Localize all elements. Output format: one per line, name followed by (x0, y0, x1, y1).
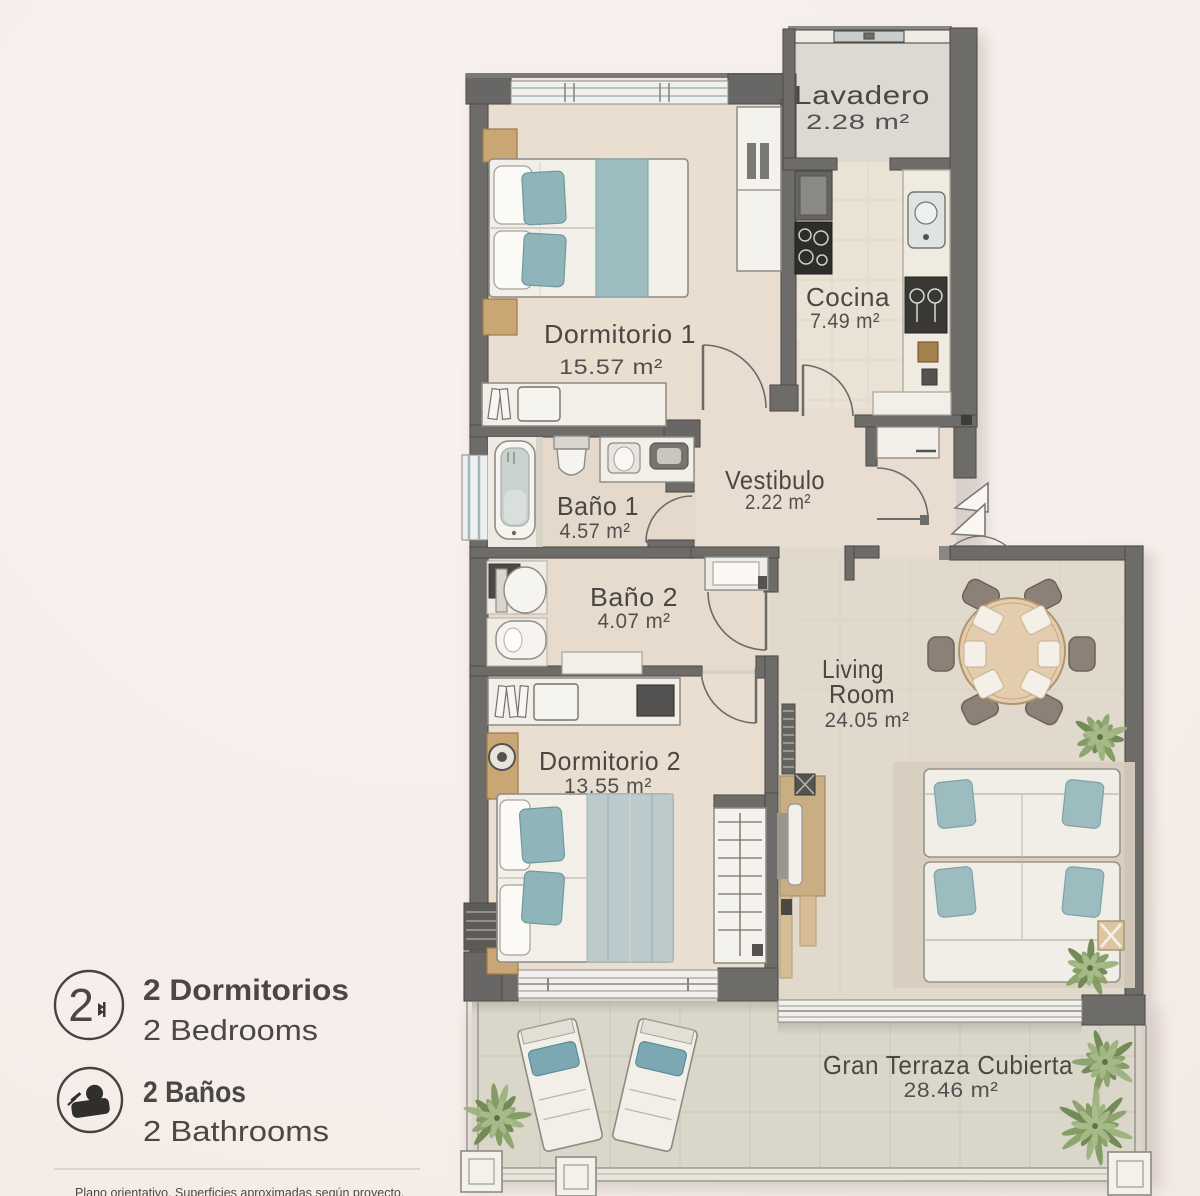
svg-text:Plano orientativo. Superficies: Plano orientativo. Superficies aproximad… (75, 1186, 404, 1196)
svg-text:Cocina: Cocina (806, 282, 890, 312)
svg-text:28.46 m²: 28.46 m² (904, 1079, 999, 1102)
svg-text:2 Baños: 2 Baños (143, 1076, 246, 1109)
svg-text:Dormitorio 2: Dormitorio 2 (539, 746, 681, 776)
svg-text:Dormitorio 1: Dormitorio 1 (544, 319, 696, 349)
svg-text:Gran Terraza Cubierta: Gran Terraza Cubierta (823, 1050, 1073, 1080)
svg-text:Baño 1: Baño 1 (557, 491, 639, 521)
svg-text:15.57 m²: 15.57 m² (559, 356, 663, 379)
svg-text:4.07 m²: 4.07 m² (598, 610, 671, 633)
svg-text:Room: Room (829, 679, 895, 709)
svg-text:Lavadero: Lavadero (794, 80, 930, 110)
svg-text:4.57 m²: 4.57 m² (560, 520, 631, 543)
svg-text:2 Dormitorios: 2 Dormitorios (143, 974, 349, 1007)
svg-text:2 Bathrooms: 2 Bathrooms (143, 1116, 329, 1148)
svg-text:2 Bedrooms: 2 Bedrooms (143, 1015, 318, 1047)
svg-text:Baño 2: Baño 2 (590, 582, 678, 612)
svg-text:13.55 m²: 13.55 m² (564, 775, 652, 798)
svg-text:2: 2 (68, 979, 94, 1031)
svg-text:2.28 m²: 2.28 m² (806, 111, 910, 134)
svg-text:7.49 m²: 7.49 m² (810, 310, 880, 333)
svg-text:2.22 m²: 2.22 m² (745, 491, 811, 514)
svg-text:24.05 m²: 24.05 m² (825, 709, 910, 732)
